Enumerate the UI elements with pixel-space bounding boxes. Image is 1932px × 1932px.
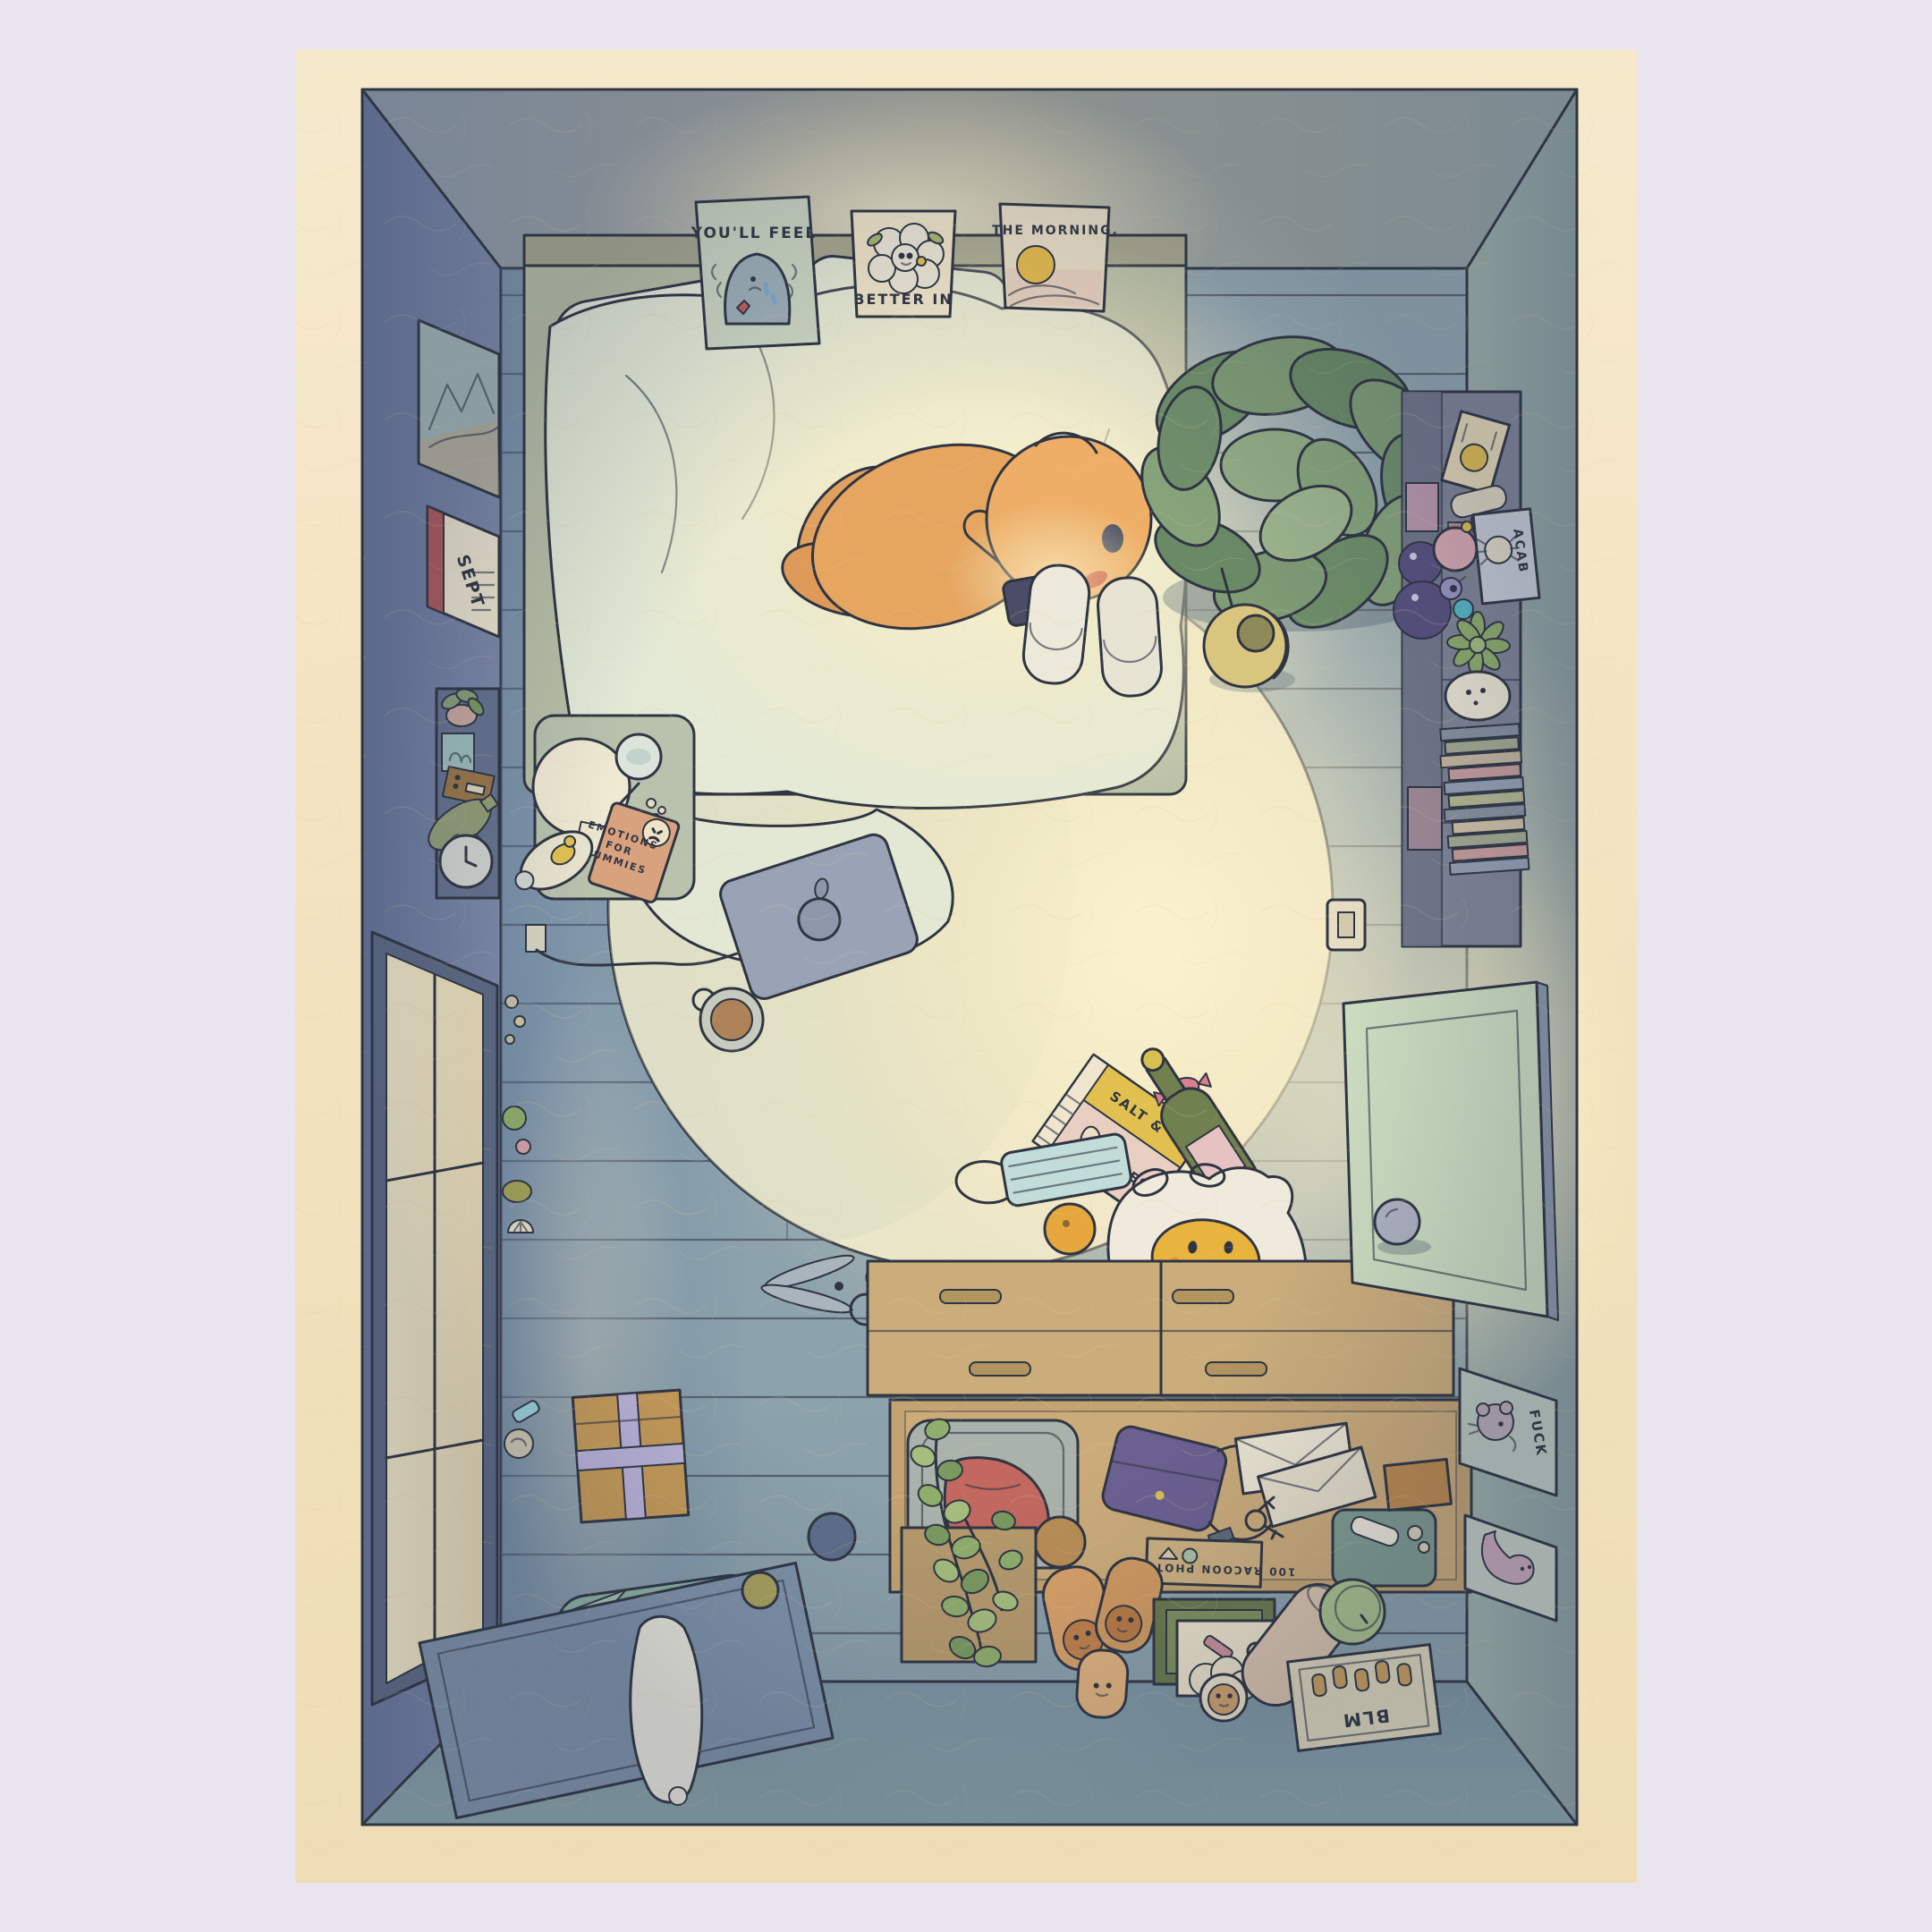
room-illustration: EMOTIONS FOR DUMMIES SEPT — [0, 0, 1932, 1932]
vignette — [362, 89, 1577, 1825]
artwork-stage: EMOTIONS FOR DUMMIES SEPT — [0, 0, 1932, 1932]
